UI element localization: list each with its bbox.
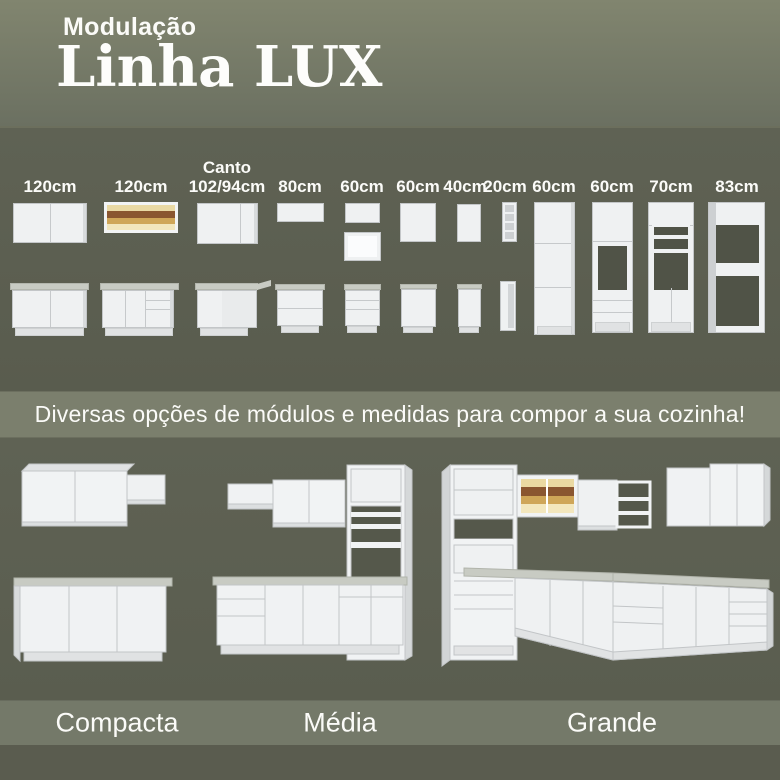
glass-wall-cabinet (517, 475, 578, 517)
base-cabinet-2-door-icon (12, 290, 87, 328)
wall-cabinets (228, 480, 345, 527)
plinth-icon (200, 328, 248, 336)
plinth-icon (105, 328, 173, 336)
open-shelf-tower-icon (648, 202, 694, 333)
plinth-icon (281, 326, 319, 333)
narrow-base-cabinet-icon (458, 289, 481, 327)
wall-cabinets (22, 464, 165, 526)
countertop-wing-icon (257, 280, 271, 290)
oven-tower-icon (592, 202, 633, 333)
base-cabinet-1-door-icon (401, 289, 436, 327)
drawer-base-cabinet-icon (345, 290, 380, 326)
wall-cabinet-icon (345, 203, 380, 223)
module-label: 120cm (5, 158, 95, 196)
wall-cabinet-2-door-icon (13, 203, 87, 243)
corner-base-cabinet-icon (197, 290, 257, 328)
kitchen-media-illustration (205, 456, 430, 676)
base-cabinets (14, 578, 172, 661)
kitchen-grande-illustration (438, 450, 775, 680)
header-band: Modulação Linha LUX (0, 0, 780, 128)
kitchen-label-compacta: Compacta (55, 708, 178, 739)
pantry-tower-icon (534, 202, 575, 335)
corner-wall-cabinet-icon (197, 203, 258, 244)
narrow-wall-cabinet-icon (457, 204, 481, 242)
tall-tower (442, 465, 517, 666)
wall-cabinet-1-door-icon (400, 203, 436, 242)
plinth-icon (403, 327, 433, 333)
plinth-icon (537, 326, 572, 335)
base-cabinet-door-drawer-icon (102, 290, 174, 328)
plinth-icon (459, 327, 479, 333)
plinth-icon (15, 328, 84, 336)
page-title: Linha LUX (56, 34, 382, 100)
narrow-shelf-unit-icon (500, 281, 516, 331)
wall-cabinet-icon (277, 203, 324, 222)
countertop-icon (195, 283, 258, 290)
tagline-band: Diversas opções de módulos e medidas par… (0, 391, 780, 438)
drawer-base-cabinet-icon (277, 290, 323, 326)
base-cabinets (213, 577, 407, 654)
kitchen-labels-band: Compacta Média Grande (0, 700, 780, 745)
kitchen-label-media: Média (303, 708, 377, 739)
promo-banner: Modulação Linha LUX 120cm 120cm Canto 10… (0, 0, 780, 780)
countertop-icon (10, 283, 89, 290)
kitchen-label-grande: Grande (567, 708, 657, 739)
wall-cabinets (578, 464, 770, 530)
shelf-unit-icon (502, 202, 517, 242)
footer-strip (0, 745, 780, 780)
open-niche-icon (345, 233, 380, 260)
modules-band: 120cm 120cm Canto 102/94cm (0, 128, 780, 391)
module-label: 83cm (692, 158, 780, 196)
module-label: 120cm (96, 158, 186, 196)
kitchens-band (0, 438, 780, 700)
kitchen-compacta-illustration (12, 458, 212, 673)
glass-wall-cabinet-icon (104, 202, 178, 233)
countertop-icon (100, 283, 179, 290)
plinth-icon (347, 326, 377, 333)
fridge-frame-tower-icon (708, 202, 765, 333)
tagline-text: Diversas opções de módulos e medidas par… (35, 401, 746, 428)
